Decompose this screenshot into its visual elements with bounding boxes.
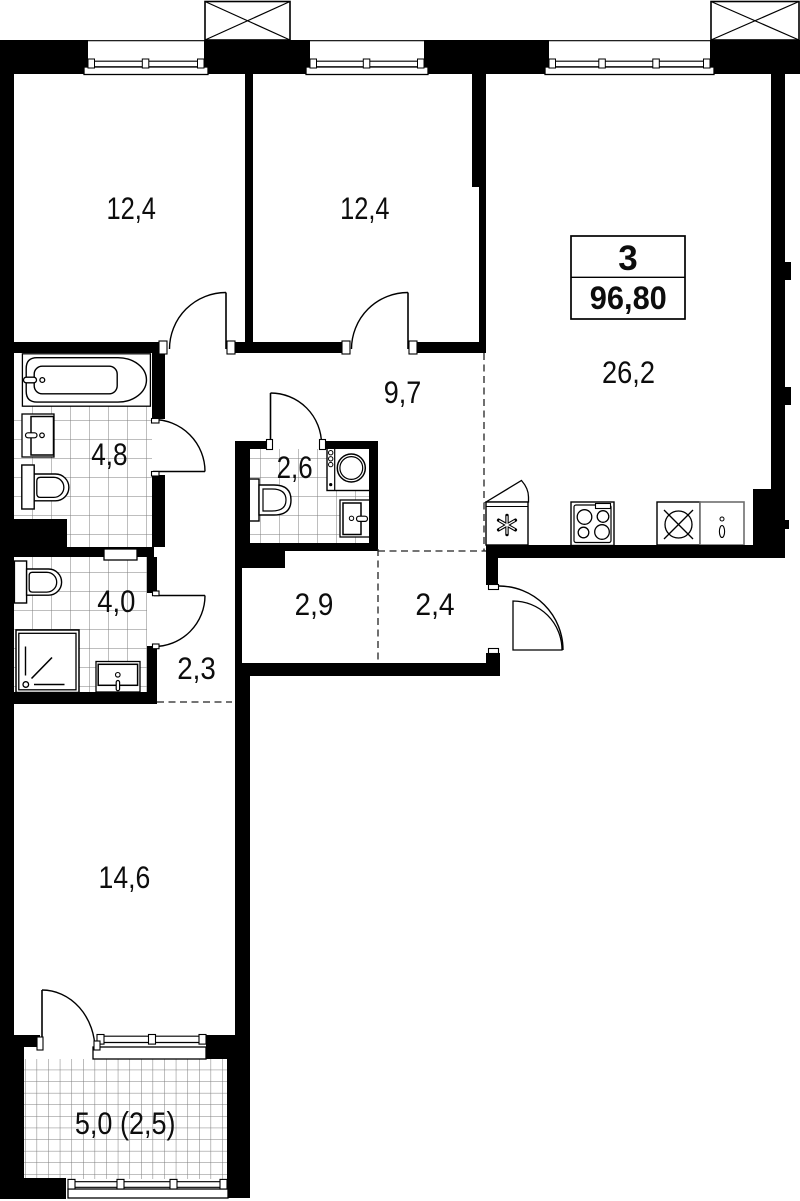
svg-text:9,7: 9,7 [384,374,422,410]
svg-text:2,6: 2,6 [277,449,313,485]
svg-text:12,4: 12,4 [340,190,389,226]
svg-text:2,9: 2,9 [295,586,334,622]
svg-text:12,4: 12,4 [106,190,156,226]
svg-text:2,3: 2,3 [177,650,216,686]
svg-text:3: 3 [618,239,637,278]
svg-text:96,80: 96,80 [590,280,667,316]
svg-text:4,0: 4,0 [97,583,135,619]
svg-text:4,8: 4,8 [91,436,127,472]
svg-text:2,4: 2,4 [415,586,454,622]
svg-text:26,2: 26,2 [602,354,655,390]
svg-text:14,6: 14,6 [99,859,151,895]
svg-text:5,0 (2,5): 5,0 (2,5) [75,1105,176,1141]
